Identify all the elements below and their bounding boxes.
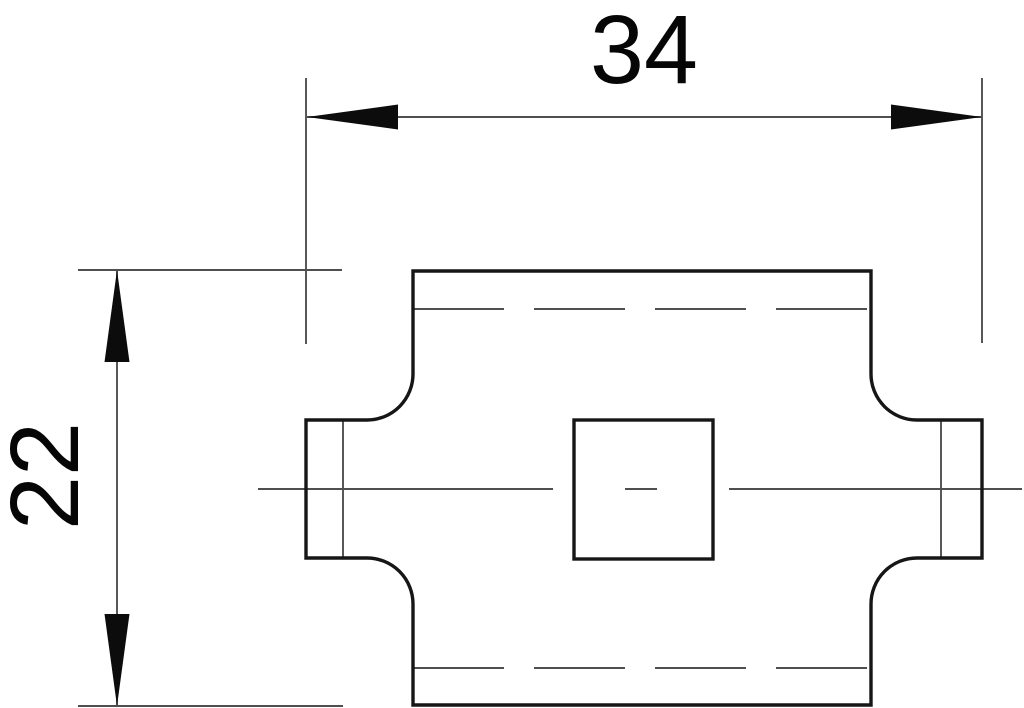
dimension-labels: 34 22	[0, 0, 698, 530]
arrowhead-right-icon	[891, 105, 982, 130]
part-outline	[306, 271, 982, 705]
construction-lines	[78, 78, 1022, 706]
dimension-arrowheads	[105, 105, 983, 707]
width-dimension-label: 34	[590, 0, 698, 104]
part-geometry	[306, 271, 982, 705]
drawing-canvas: 34 22	[0, 0, 1024, 708]
arrowhead-left-icon	[307, 105, 398, 130]
engineering-drawing: 34 22	[0, 0, 1024, 708]
arrowhead-up-icon	[105, 270, 130, 362]
arrowhead-down-icon	[105, 614, 130, 706]
height-dimension-label: 22	[0, 422, 99, 530]
